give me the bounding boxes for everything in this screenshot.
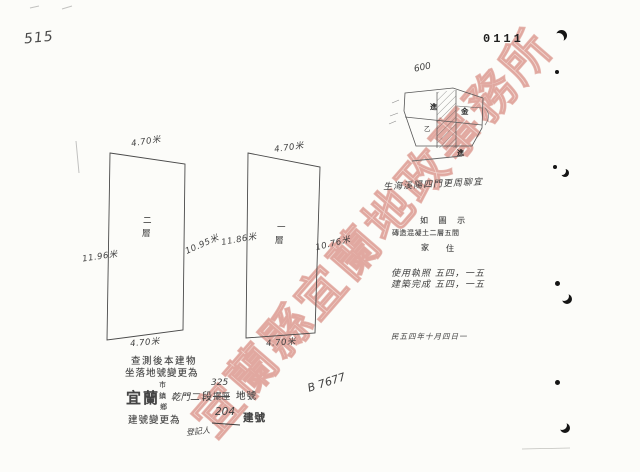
left-plan-floor-char-1: 二	[143, 214, 152, 226]
floor-plan-left-outline	[107, 153, 185, 340]
punch-mark-dot	[553, 165, 557, 169]
crossed-out-text: 擺厘	[213, 390, 230, 402]
right-plan-floor-char-1: 一	[277, 221, 286, 233]
site-map-label-c: 乙	[424, 123, 431, 133]
building-word: 建號	[243, 410, 266, 425]
punch-mark-crescent	[562, 294, 572, 304]
admin-option-town: 鎮	[159, 391, 166, 401]
punch-mark-crescent	[556, 30, 567, 41]
description-row-2: 磚造混凝土二層五間	[392, 228, 460, 238]
lot-word: 地號	[236, 388, 257, 402]
date-line-2: 建築完成 五四，一五	[391, 277, 485, 290]
left-plan-floor-char-2: 層	[142, 227, 151, 239]
punch-mark-dot	[555, 70, 559, 74]
site-map-label-a: 進	[430, 102, 437, 112]
section-name-handwritten: 乾門二	[171, 389, 200, 403]
building-number-handwritten: 204	[215, 406, 235, 418]
description-row-1: 如 圖 示	[420, 215, 469, 226]
admin-option-city: 市	[159, 380, 166, 390]
punch-mark-crescent	[561, 169, 569, 177]
sheet-number: 515	[23, 28, 54, 47]
scanned-document-page: 宜蘭縣宜蘭地政事務所 515 0111 4.7	[0, 0, 640, 472]
description-row-3-left: 家	[421, 242, 429, 253]
punch-mark-crescent	[560, 423, 570, 433]
city-name: 宜蘭	[126, 387, 160, 408]
right-plan-floor-char-2: 層	[275, 234, 284, 246]
punch-mark-dot	[555, 380, 560, 385]
punch-mark-dot	[555, 281, 560, 286]
site-map-label-d: 進	[457, 148, 464, 158]
plan-line-art	[0, 0, 640, 472]
change-note-line-4: 建號變更為	[128, 412, 181, 426]
date-line-3: 民五四年十月四日一	[391, 331, 468, 342]
site-map-hatched-strip	[437, 90, 456, 148]
section-word: 段	[202, 388, 212, 403]
admin-option-township: 鄉	[160, 402, 167, 412]
page-stamp-number: 0111	[483, 32, 524, 46]
change-note-line-2: 坐落地號變更為	[125, 365, 199, 379]
lot-number-handwritten: 325	[211, 378, 228, 388]
right-plan-bottom-dimension: 4.70米	[266, 335, 297, 349]
site-map-label-b: 金	[461, 106, 469, 117]
description-row-3-right: 住	[446, 243, 454, 254]
